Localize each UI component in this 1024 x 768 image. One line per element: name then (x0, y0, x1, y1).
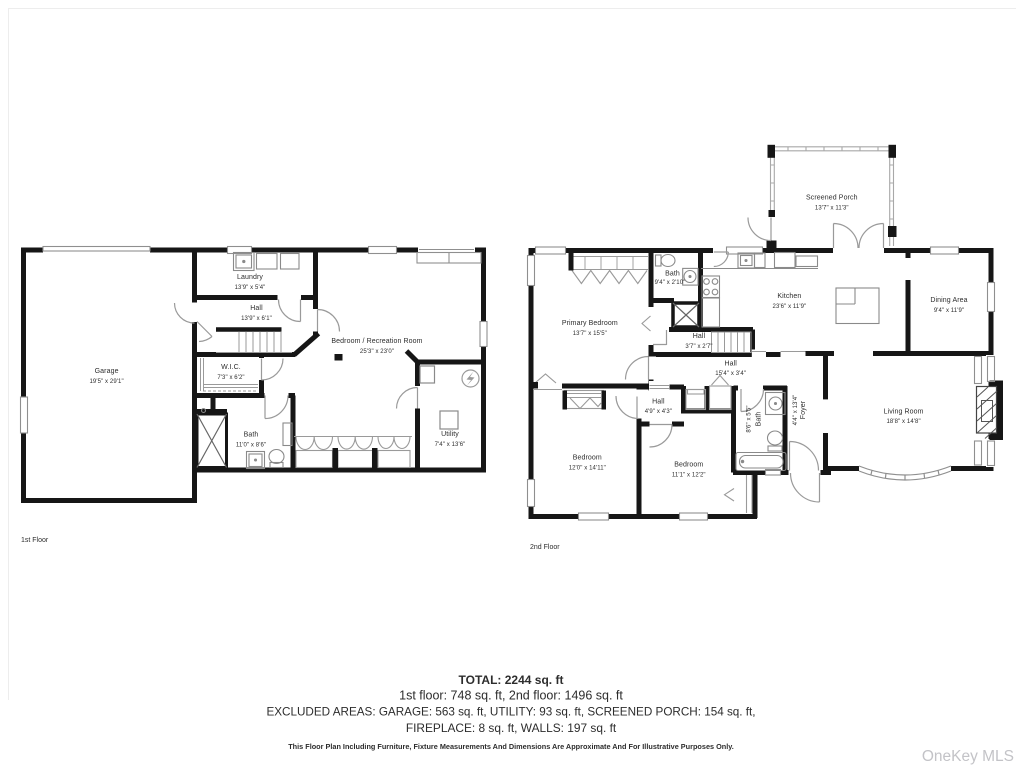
svg-text:Bath: Bath (244, 432, 259, 439)
svg-text:13'7" x 15'5": 13'7" x 15'5" (573, 331, 607, 337)
svg-text:19'5" x 29'1": 19'5" x 29'1" (89, 379, 123, 385)
svg-text:Hall: Hall (724, 361, 737, 368)
svg-text:12'0" x 14'11": 12'0" x 14'11" (569, 466, 606, 472)
svg-text:W.I.C.: W.I.C. (221, 364, 241, 371)
svg-text:Hall: Hall (652, 399, 665, 406)
svg-text:13'9" x 5'4": 13'9" x 5'4" (235, 285, 266, 291)
svg-text:25'3" x 23'0": 25'3" x 23'0" (360, 349, 394, 355)
svg-text:7'4" x 13'6": 7'4" x 13'6" (435, 442, 466, 448)
svg-text:Bath: Bath (756, 412, 763, 427)
svg-text:EXCLUDED AREAS: GARAGE: 563 sq: EXCLUDED AREAS: GARAGE: 563 sq. ft, UTIL… (266, 706, 755, 719)
svg-text:Utility: Utility (441, 431, 459, 438)
svg-text:Foyer: Foyer (800, 400, 807, 419)
svg-text:Bath: Bath (665, 271, 680, 278)
svg-text:This Floor Plan Including Furn: This Floor Plan Including Furniture, Fix… (288, 742, 734, 751)
svg-text:Screened Porch: Screened Porch (806, 195, 858, 202)
svg-text:4'9" x 4'3": 4'9" x 4'3" (645, 409, 672, 415)
svg-text:9'4" x 2'10": 9'4" x 2'10" (655, 280, 686, 286)
svg-text:Bedroom: Bedroom (674, 462, 703, 469)
svg-text:2nd Floor: 2nd Floor (530, 544, 560, 551)
svg-text:15'4" x 3'4": 15'4" x 3'4" (715, 371, 746, 377)
svg-text:Kitchen: Kitchen (777, 293, 801, 300)
svg-text:11'0" x 8'6": 11'0" x 8'6" (236, 443, 266, 449)
svg-text:11'1" x 12'2": 11'1" x 12'2" (672, 473, 706, 479)
svg-text:13'9" x 6'1": 13'9" x 6'1" (241, 316, 272, 322)
svg-text:Bedroom / Recreation Room: Bedroom / Recreation Room (331, 338, 422, 345)
svg-text:13'7" x 11'3": 13'7" x 11'3" (815, 206, 849, 212)
svg-text:Hall: Hall (693, 333, 706, 340)
svg-text:9'4" x 11'9": 9'4" x 11'9" (934, 308, 964, 314)
svg-text:3'7" x 2'7": 3'7" x 2'7" (685, 344, 712, 350)
svg-text:1st floor: 748 sq. ft, 2nd flo: 1st floor: 748 sq. ft, 2nd floor: 1496 s… (399, 689, 623, 703)
svg-text:Hall: Hall (250, 305, 263, 312)
svg-text:23'6" x 11'9": 23'6" x 11'9" (773, 304, 807, 310)
svg-text:7'3" x 6'2": 7'3" x 6'2" (217, 375, 244, 381)
svg-text:TOTAL: 2244 sq. ft: TOTAL: 2244 sq. ft (459, 673, 564, 687)
svg-text:Bedroom: Bedroom (573, 455, 602, 462)
svg-text:Primary Bedroom: Primary Bedroom (562, 320, 618, 327)
svg-text:Dining Area: Dining Area (930, 297, 967, 304)
svg-text:1st Floor: 1st Floor (21, 537, 49, 544)
svg-text:18'8" x 14'8": 18'8" x 14'8" (886, 419, 920, 425)
svg-text:4'4" x 13'4": 4'4" x 13'4" (793, 395, 799, 426)
svg-text:Living Room: Living Room (884, 409, 924, 416)
svg-text:Garage: Garage (95, 368, 119, 375)
svg-text:OneKey MLS: OneKey MLS (922, 748, 1014, 765)
svg-text:8'6" x 5'5": 8'6" x 5'5" (747, 405, 753, 432)
svg-text:FIREPLACE: 8 sq. ft, WALLS: 19: FIREPLACE: 8 sq. ft, WALLS: 197 sq. ft (406, 721, 617, 735)
svg-text:Laundry: Laundry (237, 274, 263, 281)
